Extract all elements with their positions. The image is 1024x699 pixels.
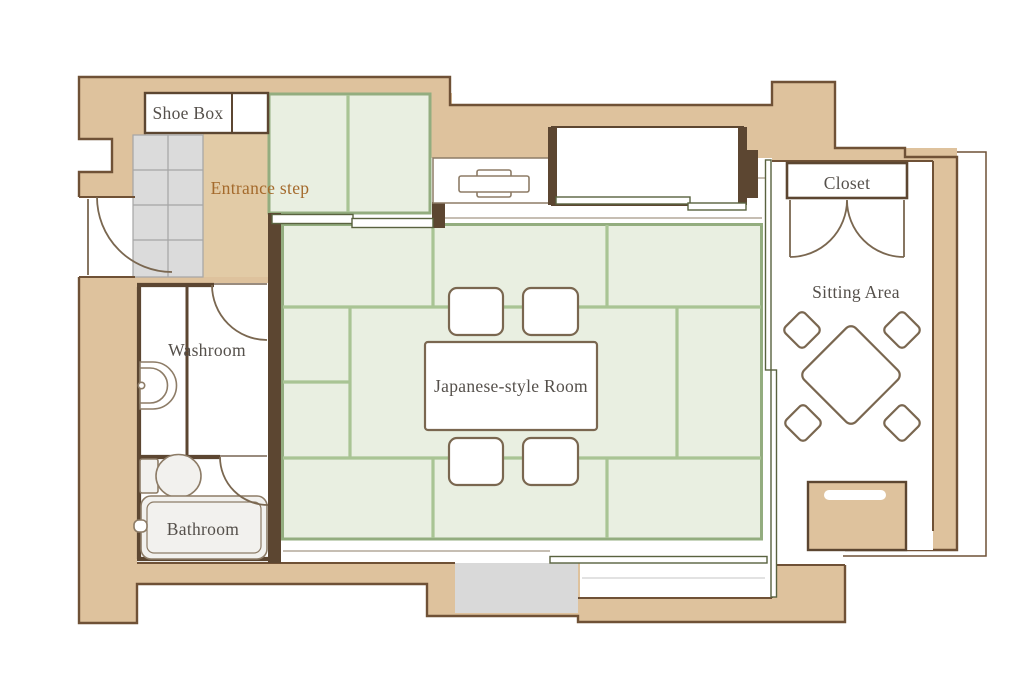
sink [138,362,176,409]
bathroom-label: Bathroom [167,519,239,539]
entrance-step-label: Entrance step [211,178,310,198]
toilet [140,455,201,498]
floor-plan: Shoe Box Entrance step Washroom Bathroom… [0,0,1024,699]
cushion [523,288,578,335]
washroom-label: Washroom [168,340,246,360]
cushion [523,438,578,485]
wall-stub-top [432,202,445,228]
vanity-counter [808,482,906,550]
console-top-icon [459,176,529,192]
cushion [449,438,503,485]
floor-plan-drawing: Shoe Box Entrance step Washroom Bathroom… [0,0,1024,699]
alcove [548,127,747,210]
exterior-unit-block [455,563,578,613]
alcove-sliding-track [688,203,746,210]
shoe-box-label: Shoe Box [153,103,224,123]
alcove-sliding-track [556,197,690,204]
sitting-area-label: Sitting Area [812,282,900,302]
wall-stub-right [744,150,758,198]
closet-label: Closet [824,173,871,193]
counter [433,158,552,203]
vanity-sink-slot [824,490,886,500]
entrance-step-floor [203,133,270,277]
entrance-tiles [133,135,203,277]
japanese-room-label: Japanese-style Room [434,376,588,396]
partition-wall [268,213,281,563]
cushion [449,288,503,335]
